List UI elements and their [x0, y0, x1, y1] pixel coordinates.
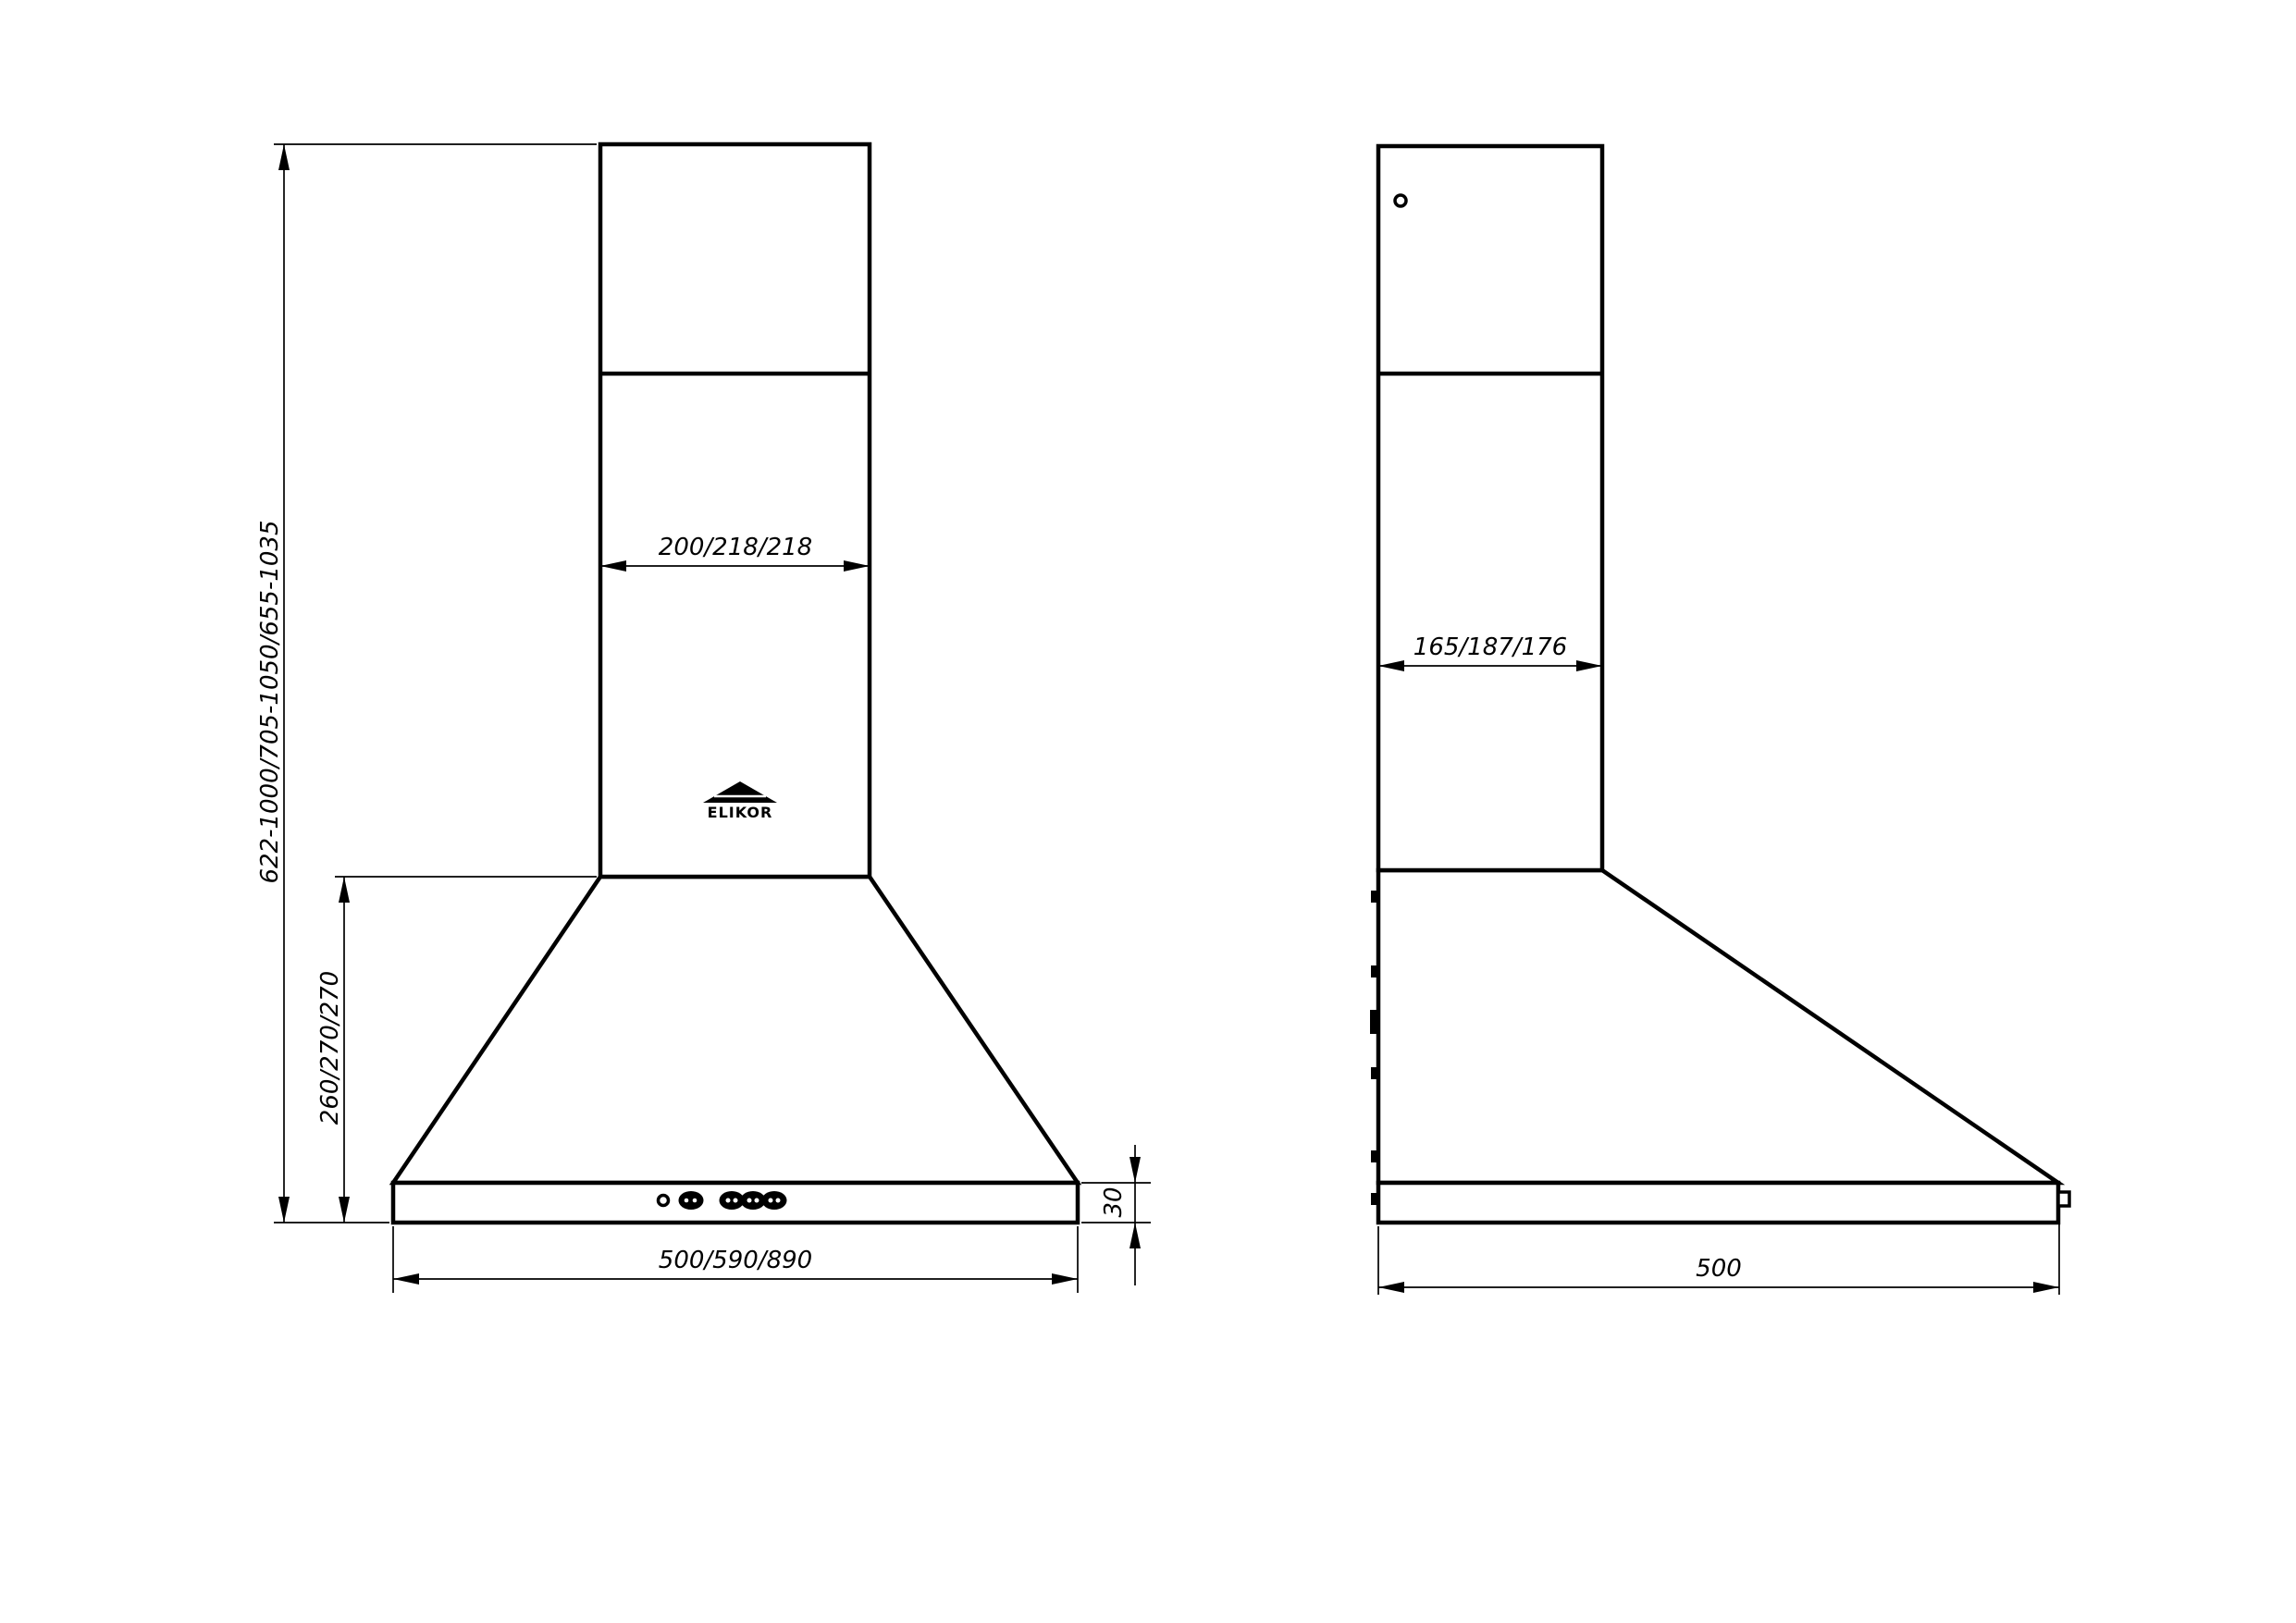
drawing-page: ELIKOR 622-1000/705-1050/655-1035	[0, 0, 2296, 1623]
side-base-tab	[2058, 1192, 2069, 1206]
speed-button-3-glyph	[769, 1199, 773, 1203]
mounting-hole	[1395, 195, 1406, 206]
speed-button-1-glyph	[734, 1199, 738, 1203]
light-button-glyph	[685, 1199, 689, 1203]
side-chimney	[1378, 146, 1602, 870]
indicator-light	[659, 1196, 669, 1206]
dim-body-width: 500/590/890	[393, 1226, 1078, 1293]
light-button-glyph	[693, 1199, 697, 1203]
dim-body-depth-label: 500	[1696, 1255, 1742, 1283]
speed-button-1-glyph	[726, 1199, 731, 1203]
hood-dimension-drawing: ELIKOR 622-1000/705-1050/655-1035	[0, 0, 2296, 1623]
dim-body-height-label: 260/270/270	[316, 971, 344, 1125]
dim-overall-height-label: 622-1000/705-1050/655-1035	[256, 520, 284, 883]
speed-button-3-glyph	[776, 1199, 781, 1203]
speed-button-1	[720, 1191, 745, 1210]
front-chimney	[600, 144, 870, 877]
logo-text: ELIKOR	[708, 804, 773, 821]
dim-body-width-label: 500/590/890	[659, 1247, 812, 1274]
speed-button-2-glyph	[747, 1199, 752, 1203]
dim-base-height-label: 30	[1100, 1187, 1128, 1217]
dim-base-height: 30	[1081, 1145, 1151, 1285]
side-view: 165/187/176 500	[1370, 146, 2069, 1295]
side-base-band	[1378, 1183, 2058, 1223]
light-button	[679, 1191, 704, 1210]
dim-chimney-width-label: 200/218/218	[659, 534, 812, 561]
side-hood-body	[1378, 870, 2058, 1183]
dim-chimney-depth-label: 165/187/176	[1413, 633, 1567, 661]
front-hood-body	[393, 877, 1078, 1183]
front-view: ELIKOR 622-1000/705-1050/655-1035	[256, 144, 1151, 1293]
speed-button-2-glyph	[755, 1199, 759, 1203]
speed-button-3	[762, 1191, 787, 1210]
speed-button-2	[741, 1191, 766, 1210]
